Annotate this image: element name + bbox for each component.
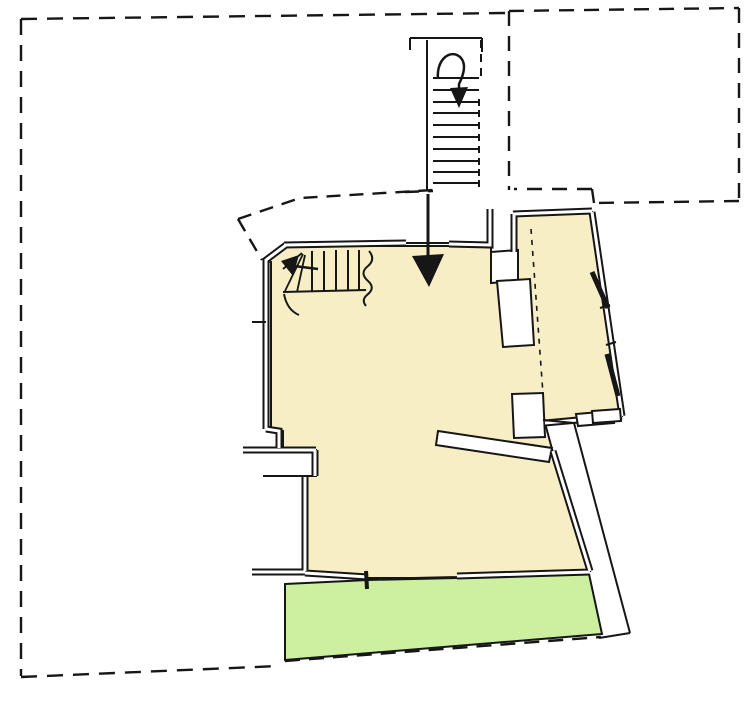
window-right-room-bottom bbox=[592, 409, 621, 423]
terrace-wall-cap bbox=[366, 571, 367, 589]
masonry-block-middle bbox=[497, 279, 534, 347]
floor-plan-drawing bbox=[0, 0, 747, 721]
masonry-block-lower bbox=[512, 393, 545, 438]
masonry-block-upper bbox=[491, 250, 518, 283]
floor-plan-canvas bbox=[0, 0, 747, 721]
building-interior bbox=[265, 212, 622, 579]
